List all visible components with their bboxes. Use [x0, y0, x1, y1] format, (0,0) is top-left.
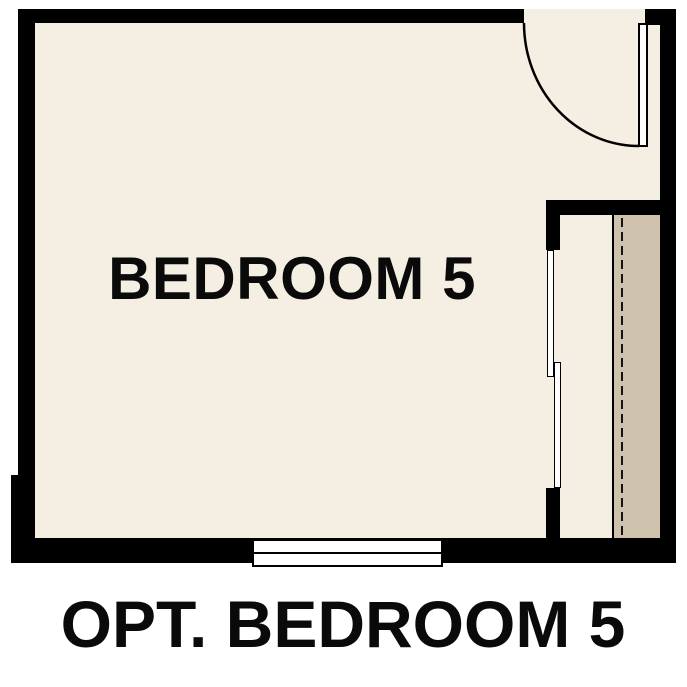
floorplan-canvas: BEDROOM 5 OPT. BEDROOM 5: [0, 0, 687, 687]
window-symbol: [252, 539, 443, 567]
door-opening-floor: [524, 9, 645, 23]
wall-right: [660, 9, 676, 562]
closet-wall-stub-lower: [546, 488, 560, 540]
closet-wall-stub-upper: [546, 200, 560, 250]
wall-top: [18, 9, 524, 23]
wall-left-upper: [18, 9, 35, 475]
plan-caption: OPT. BEDROOM 5: [61, 591, 626, 657]
closet-shelf-band: [613, 215, 660, 538]
room-label: BEDROOM 5: [108, 249, 476, 309]
sliding-door-panel-front: [554, 362, 561, 488]
window-divider-line: [254, 552, 441, 554]
door-leaf: [638, 23, 648, 147]
sliding-door-panel-rear: [547, 250, 554, 377]
closet-wall-top: [546, 200, 660, 215]
